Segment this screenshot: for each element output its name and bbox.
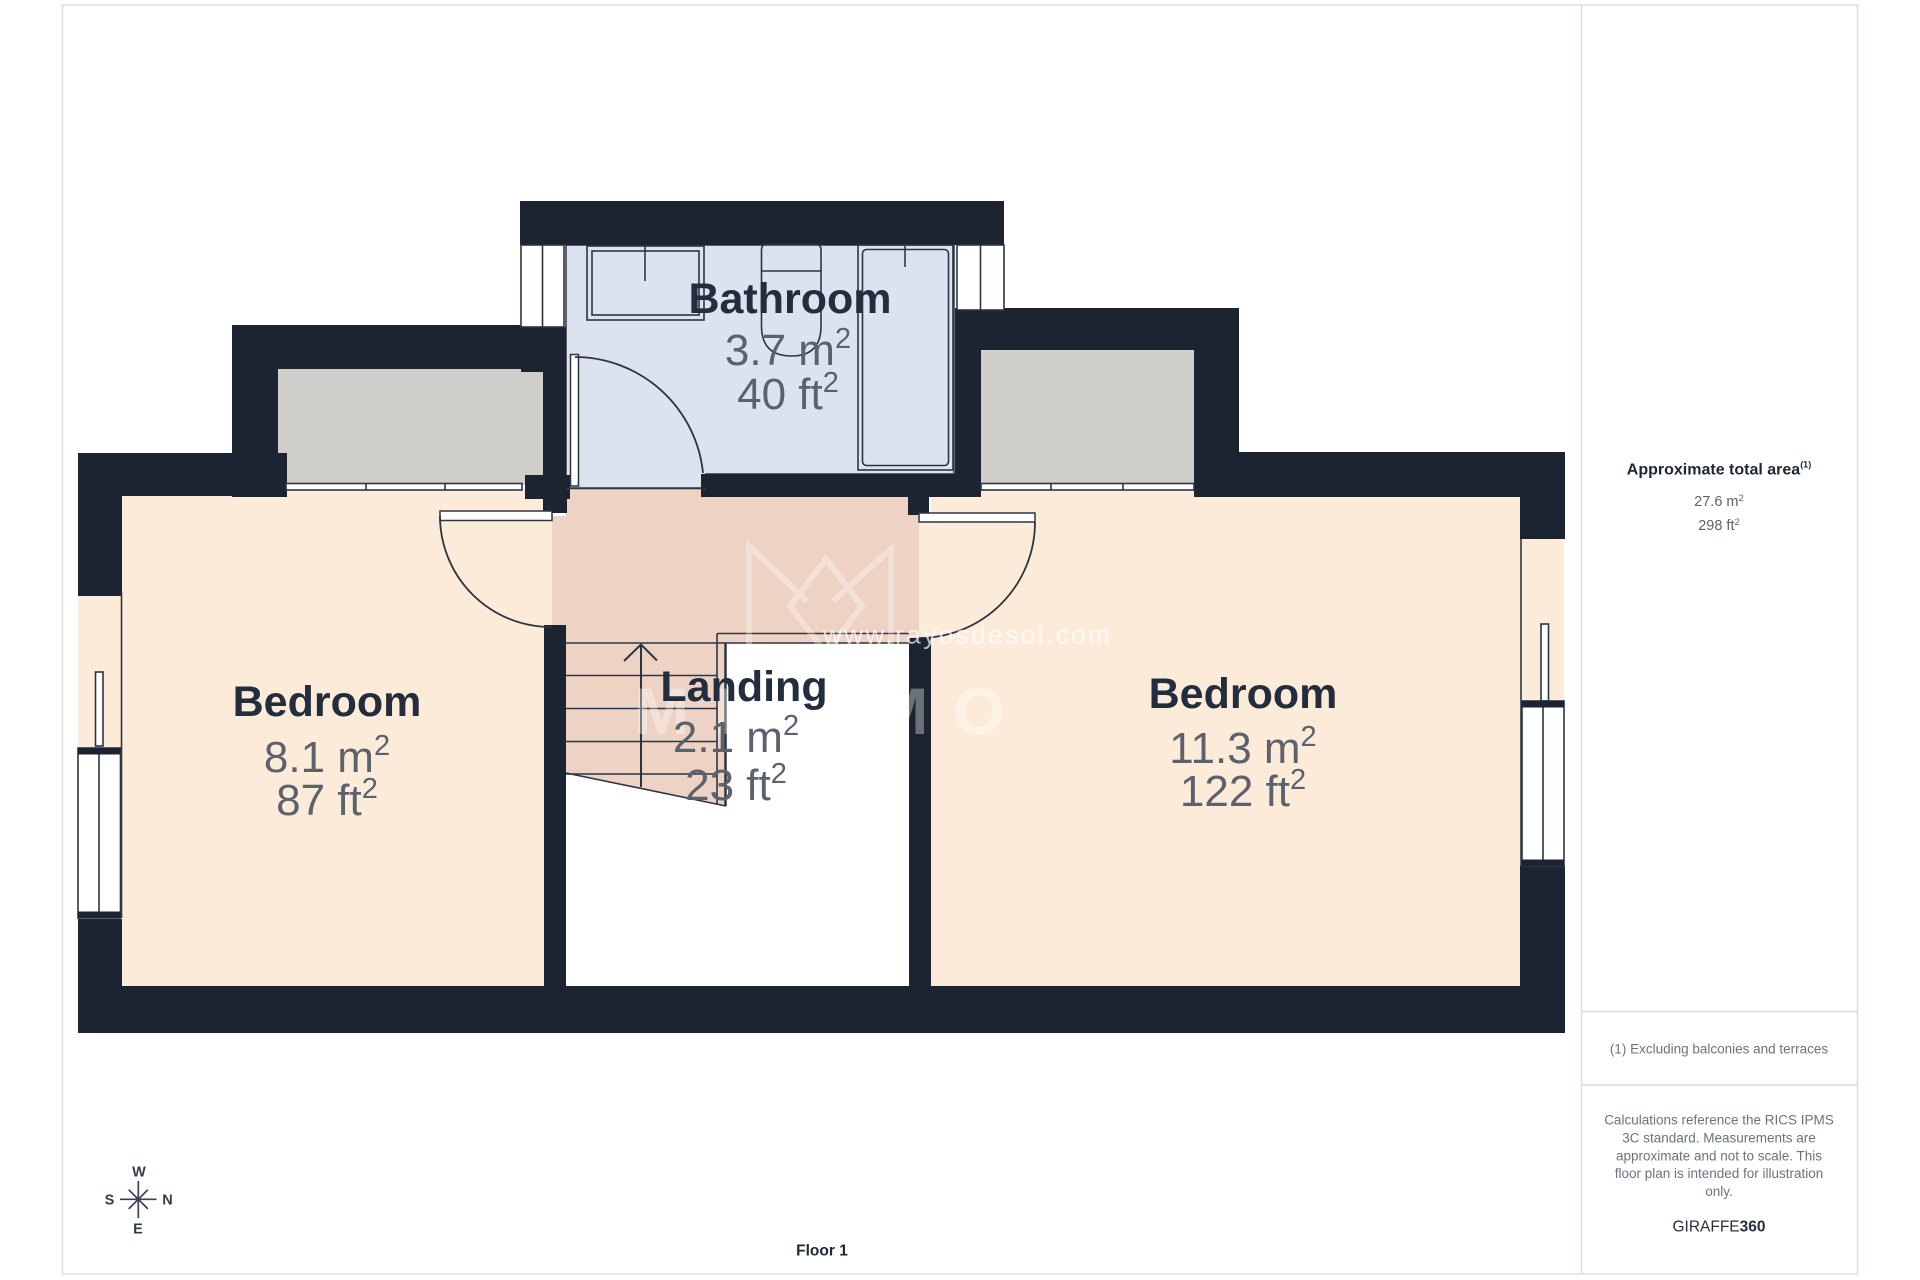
svg-text:2.1 m2: 2.1 m2 (673, 710, 799, 762)
svg-text:S: S (105, 1193, 115, 1209)
svg-text:Landing: Landing (660, 663, 827, 711)
svg-text:122 ft2: 122 ft2 (1180, 764, 1306, 816)
svg-text:N: N (162, 1193, 172, 1209)
svg-text:298 ft2: 298 ft2 (1698, 517, 1740, 534)
svg-text:(1) Excluding balconies and te: (1) Excluding balconies and terraces (1610, 1042, 1829, 1057)
svg-text:Bedroom: Bedroom (1149, 670, 1338, 718)
svg-text:Bathroom: Bathroom (688, 275, 891, 323)
svg-text:W: W (132, 1165, 146, 1181)
svg-text:Approximate total area(1): Approximate total area(1) (1627, 460, 1811, 479)
svg-text:27.6 m2: 27.6 m2 (1694, 493, 1744, 510)
svg-text:Floor 1: Floor 1 (796, 1243, 848, 1260)
svg-text:23 ft2: 23 ft2 (685, 758, 787, 810)
svg-text:www.rayosdesol.com: www.rayosdesol.com (822, 620, 1112, 650)
svg-text:E: E (133, 1222, 143, 1238)
svg-text:Calculations reference the RIC: Calculations reference the RICS IPMS3C s… (1604, 1113, 1834, 1199)
svg-text:Bedroom: Bedroom (233, 678, 422, 726)
svg-text:GIRAFFE360: GIRAFFE360 (1672, 1219, 1765, 1236)
